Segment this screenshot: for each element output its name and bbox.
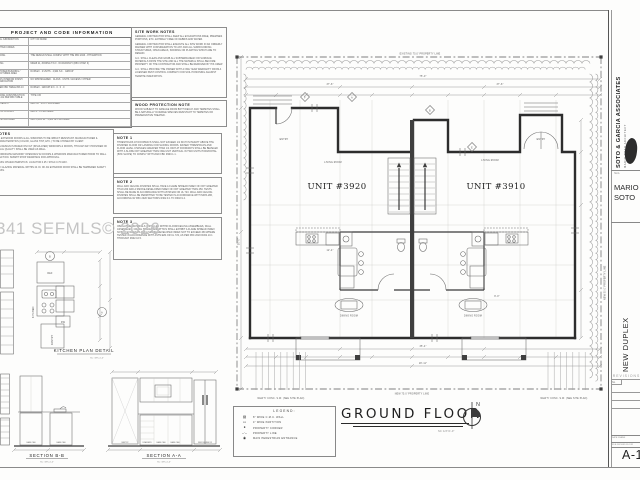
section-aa-title: SECTION A-A (147, 453, 182, 458)
table-cell-label: MEANS INTERIOR FINISH CLASSIFICATION (0, 78, 29, 85)
bathroom-right (414, 232, 484, 290)
dim-line (108, 250, 112, 350)
kitchen-plan-detail-drawing: REF PANTRY KITCHEN DW B A KITCHEN PLAN D… (0, 242, 120, 368)
wood-note-title: WOOD PROTECTION NOTE (135, 103, 223, 107)
svg-text:B: B (49, 257, 51, 259)
mls-watermark: 341 SEFMLS© 2026 (0, 219, 160, 239)
unit-right-label: UNIT #3910 (466, 182, 525, 192)
architect-name: MARIO SOTO (614, 183, 639, 203)
property-corner (235, 55, 238, 58)
drawing-scale: SC: 1/4"=1'-0" (438, 430, 454, 433)
project-code-info-table: PROJECT AND CODE INFORMATION LOCAL JURIS… (0, 27, 132, 128)
kitchen-detail-scale: SC: 3/8"=1'-0" (90, 358, 104, 360)
sidewalk-note-right: NEW 5' CONC. S.W. (SEE SITE PLAN) (541, 397, 588, 400)
drawing-sheet: PROJECT AND CODE INFORMATION LOCAL JURIS… (0, 0, 640, 480)
table-cell-label: PROPOSED BUILDING / STRUCTURES AREA (0, 70, 29, 77)
note-paragraph: ANY GLAZING MATERIAL WITHIN 24 IN. OF AN… (0, 167, 110, 173)
svg-text:37'-6": 37'-6" (496, 84, 503, 86)
note-paragraph: G.C. SHALL PROVIDE THE OWNER WITH A ONE … (135, 69, 223, 78)
entry-doors (253, 96, 558, 149)
bottom-property-line-label: NEW 75.0' PROPERTY LINE (395, 394, 430, 396)
svg-text:F: F (304, 97, 306, 99)
legend-item: ◉ MAIN PEDESTRIAN ENTRANCE (238, 437, 331, 440)
svg-text:A: A (351, 96, 353, 99)
base-cabinet (50, 413, 72, 445)
sink (475, 236, 481, 242)
table-cell-value: NO SPRINKLERED · CLASS · UNITS / ACCESS … (29, 78, 131, 85)
base-cabinets (140, 415, 192, 445)
upper-cabinets (140, 378, 192, 402)
svg-text:9'-0": 9'-0" (494, 296, 500, 298)
legend-symbol-icon: –·– (238, 432, 251, 435)
table-cell-value: CITY OF MIAMI (29, 38, 131, 45)
table-cell-label: MAX SF ALLOWED (0, 119, 29, 126)
dining-right: DINING ROOM (459, 299, 487, 318)
property-lines: EXISTING 75.0' PROPERTY LINE NEW 75.0' P… (235, 54, 606, 396)
kitchen-sections-drawing: BASE CAB BASE CAB SECTION B-B SC: 3/8"=1… (0, 368, 232, 465)
kitchen-detail-title: KITCHEN PLAN DETAIL (54, 348, 115, 353)
site-work-notes-title: SITE WORK NOTES (135, 30, 223, 34)
table-cell-label: NUM OF FLOORS (0, 111, 29, 118)
section-bb-drawing: BASE CAB BASE CAB SECTION B-B SC: 3/8"=1… (12, 376, 86, 464)
stairs-right (414, 158, 436, 214)
hedge-line (596, 74, 598, 381)
svg-text:DINING ROOM: DINING ROOM (340, 316, 358, 318)
note-paragraph: WALL AND CEILING FINISHES SHALL HAVE A F… (117, 186, 218, 201)
north-arrow-icon: N (461, 400, 485, 430)
living-room-label-left: LIVING ROOM (324, 162, 342, 164)
island-plan (56, 286, 74, 298)
project-table-title: PROJECT AND CODE INFORMATION (0, 28, 131, 38)
table-cell-value: MAX 2 · 2 PROVIDED (29, 111, 131, 118)
ref-label: REF (47, 273, 53, 275)
table-row: ADOPTED CODES (0, 46, 131, 54)
vanity (472, 232, 484, 246)
note-paragraph: G.C. SHALL CLEAN AND GRUB ALL SUBTERRANE… (135, 58, 223, 67)
note-paragraph: COORDINATE MASONRY OPENINGS W/ DOORS & W… (0, 154, 110, 160)
svg-text:BASE CAB: BASE CAB (171, 441, 181, 444)
door-swing (276, 108, 292, 124)
svg-text:BASE CAB: BASE CAB (157, 441, 167, 444)
legend-symbol-icon: ◉ (238, 437, 251, 440)
faucet (60, 407, 66, 409)
notes-title: NOTES (0, 132, 110, 136)
table-cell-value: DUPLEX · GROUP R-3 · 0 · 0 · 0 (29, 86, 131, 93)
note-paragraph: ALL EXTERIOR DOORS & ALL WINDOWS TO BE I… (0, 138, 110, 144)
sink-elevation (54, 409, 66, 412)
svg-text:SC: 3/8"=1'-0": SC: 3/8"=1'-0" (40, 462, 54, 464)
svg-text:N: N (476, 402, 480, 408)
section-bb-title: SECTION B-B (29, 453, 64, 458)
toilet (420, 243, 427, 252)
legend-item: –·– PROPERTY LINE (238, 432, 331, 435)
legend-box: LEGEND: ▨ 8" WIDE C.M.U. WALL ▭ 4" WIDE … (233, 406, 336, 457)
svg-text:37'-6": 37'-6" (326, 84, 333, 86)
sheet-number: A-1 (622, 448, 640, 462)
sidewalk-hatch (548, 352, 585, 390)
section-aa-drawing: PANTRY DRAWERS BASE CAB BASE CAB REFRIGE… (106, 370, 222, 464)
ground-floor-plan-drawing: EXISTING 75.0' PROPERTY LINE NEW 75.0' P… (230, 46, 610, 462)
table-cell-label: ZONING (0, 62, 29, 69)
entry-label-left: ENTRY (280, 139, 289, 141)
note-paragraph: GENERAL CONTRACTOR SHALL KEEP ALL EXCAVA… (135, 36, 223, 42)
reference-tags: A B E F (301, 93, 477, 152)
legend-item: ▭ 4" WIDE PARTITION (238, 421, 331, 424)
table-cell-label: BUILDING CONSTRUCTION TYPE AS PER FBC TA… (0, 94, 29, 102)
note-paragraph: GLASS CHARACTERISTICS: U-FACTOR 0.25 / S… (0, 162, 110, 165)
kitchen-label: KITCHEN (33, 306, 35, 318)
title-block: SOTO & GARCIA ASSOCIATES MARIO SOTO ARCH… (608, 10, 640, 467)
kitchen-left (296, 228, 363, 276)
property-corner (235, 387, 238, 390)
svg-text:E: E (471, 147, 473, 149)
file-row: FILE GROUND FLOOR (611, 442, 640, 446)
general-notes-box: NOTES ALL EXTERIOR DOORS & ALL WINDOWS T… (0, 129, 114, 196)
svg-text:50'-0": 50'-0" (239, 238, 241, 245)
wood-protection-note-box: WOOD PROTECTION NOTE WOOD SUBJECT TO DAM… (131, 100, 227, 127)
range-burner (42, 303, 46, 307)
svg-text:12'-4": 12'-4" (326, 250, 333, 252)
dim-line (244, 93, 602, 97)
hedge-line (246, 67, 585, 69)
refrigerator (485, 233, 498, 245)
dw-label: DW (61, 322, 66, 324)
svg-text:B: B (429, 110, 431, 112)
dim-line (35, 250, 102, 254)
bathroom-left (340, 232, 410, 290)
table-row: AS PER FBC TABLE 803.13 DUPLEX · GROUP R… (0, 86, 131, 94)
table-cell-value: THE DESIGN SHALL COMPLY WITH THE FBC 202… (29, 54, 131, 61)
side-property-line-label: NEW 50.0' PROPERTY LINE (605, 265, 607, 300)
revisions-table: REVISIONS No. (611, 373, 640, 409)
svg-text:BASE CAB: BASE CAB (27, 441, 37, 444)
table-row: MAX HEIGHT MAX 35' · 25 FT PROVIDED (0, 103, 131, 111)
table-row: BUILDING CONSTRUCTION TYPE AS PER FBC TA… (0, 94, 131, 103)
hedge-line (244, 74, 247, 200)
svg-text:REFRIGERATOR: REFRIGERATOR (198, 441, 213, 444)
table-cell-label: ADOPTED CODES (0, 46, 29, 53)
svg-text:SC: 3/8"=1'-0": SC: 3/8"=1'-0" (157, 462, 171, 464)
revisions-title: REVISIONS (611, 373, 640, 380)
property-corner (599, 387, 602, 390)
table-row: BUILDING THE DESIGN SHALL COMPLY WITH TH… (0, 54, 131, 62)
stairs-left (388, 158, 410, 214)
svg-text:PANTRY: PANTRY (121, 441, 129, 444)
counter-plan (37, 286, 64, 316)
project-name: NEW DUPLEX (621, 242, 630, 372)
toilet (398, 243, 405, 252)
project-table-rows: LOCAL JURISDICTION CITY OF MIAMI ADOPTED… (0, 38, 131, 127)
sheet-top-border (0, 10, 640, 11)
unit-left-label: UNIT #3920 (307, 182, 366, 192)
note-paragraph: WOOD SUBJECT TO DAMAGE FROM BOTH DECAY A… (135, 109, 223, 118)
cut-cabinet-strip (1, 250, 14, 288)
party-wall (410, 120, 414, 338)
sink (343, 236, 349, 242)
seal-label: SEAL (614, 173, 620, 175)
hedge-line (590, 74, 593, 378)
dining-left: DINING ROOM (335, 299, 363, 318)
table-cell-value: MAX 4,904 SF · 4,904 SF PROVIDED (29, 119, 131, 126)
legend-item: ● PROPERTY CORNER (238, 426, 331, 429)
table-row: MAX SF ALLOWED MAX 4,904 SF · 4,904 SF P… (0, 119, 131, 127)
note2-box: NOTE 2 WALL AND CEILING FINISHES SHALL H… (113, 177, 222, 214)
dim-line (239, 55, 243, 391)
table-row: ZONING MIAMI 21, ZONING T3-O · OCCUPANCY… (0, 62, 131, 70)
table-row: PROPOSED BUILDING / STRUCTURES AREA DUPL… (0, 70, 131, 78)
note1-box: NOTE 1 THRESHOLDS AT DOORWAYS SHALL NOT … (113, 133, 222, 174)
table-cell-label: MAX HEIGHT (0, 103, 29, 110)
dim-line (98, 258, 102, 342)
dim-line (579, 118, 583, 340)
sheet-bottom-border (0, 467, 640, 468)
note-paragraph: THE DESIGN IS BASED ON FGT (INSULATED) W… (0, 146, 110, 152)
note2-title: NOTE 2 (117, 180, 218, 184)
table-cell-value (29, 46, 131, 53)
firm-name: SOTO & GARCIA ASSOCIATES (616, 38, 622, 168)
kitchen-right (461, 228, 528, 276)
property-corner (599, 55, 602, 58)
table-cell-value: DUPLEX · 2 UNITS · 4,904 S.F. · GROUP (29, 70, 131, 77)
shower (470, 266, 484, 288)
sink-plan (42, 290, 56, 298)
site-work-notes-box: SITE WORK NOTES GENERAL CONTRACTOR SHALL… (131, 27, 227, 98)
svg-text:BASE CAB: BASE CAB (57, 441, 67, 444)
legend-symbol-icon: ● (238, 426, 251, 429)
legend-symbol-icon: ▨ (238, 416, 251, 419)
microwave (155, 385, 171, 397)
note1-title: NOTE 1 (117, 136, 218, 140)
table-cell-value: MAX 35' · 25 FT PROVIDED (29, 103, 131, 110)
dim-line (244, 85, 602, 89)
pantry-label: PANTRY (51, 334, 54, 345)
cabinet-shelf-lines (1, 258, 14, 274)
table-cell-value: MIAMI 21, ZONING T3-O · OCCUPANCY (FBC C… (29, 62, 131, 69)
table-cell-label: LOCAL JURISDICTION (0, 38, 29, 45)
svg-text:35'-4": 35'-4" (419, 346, 426, 348)
living-room-label-right: LIVING ROOM (481, 160, 499, 162)
sidewalk-note-left: NEW 5' CONC. S.W. (SEE SITE PLAN) (258, 397, 305, 400)
table-cell-label: BUILDING (0, 54, 29, 61)
entry-label-right: ENTRY (537, 139, 546, 141)
date-row: DATE DRAWN (611, 435, 640, 439)
table-row: NUM OF FLOORS MAX 2 · 2 PROVIDED (0, 111, 131, 119)
table-row: LOCAL JURISDICTION CITY OF MIAMI (0, 38, 131, 46)
table-cell-value: TYPE V-B (29, 94, 131, 102)
note-paragraph: THRESHOLDS AT DOORWAYS SHALL NOT EXCEED … (117, 142, 218, 157)
top-property-line-label: EXISTING 75.0' PROPERTY LINE (400, 54, 441, 56)
table-cell-label: AS PER FBC TABLE 803.13 (0, 86, 29, 93)
svg-text:18'-11": 18'-11" (419, 363, 427, 365)
note-paragraph: GENERAL CONTRACTOR SHALL EXECUTE ALL SIT… (135, 44, 223, 56)
refrigerator (326, 233, 339, 245)
hedge-line (246, 61, 590, 64)
legend-symbol-icon: ▭ (238, 421, 251, 424)
shower (340, 266, 354, 288)
legend-item: ▨ 8" WIDE C.M.U. WALL (238, 416, 331, 419)
vanity (340, 232, 352, 246)
svg-text:DRAWERS: DRAWERS (142, 441, 152, 444)
svg-text:A: A (101, 312, 103, 315)
table-row: MEANS INTERIOR FINISH CLASSIFICATION NO … (0, 78, 131, 86)
base-cabinet (20, 413, 42, 445)
legend-title: LEGEND: (238, 409, 331, 413)
svg-text:DINING ROOM: DINING ROOM (464, 316, 482, 318)
svg-text:75'-0": 75'-0" (419, 76, 426, 78)
